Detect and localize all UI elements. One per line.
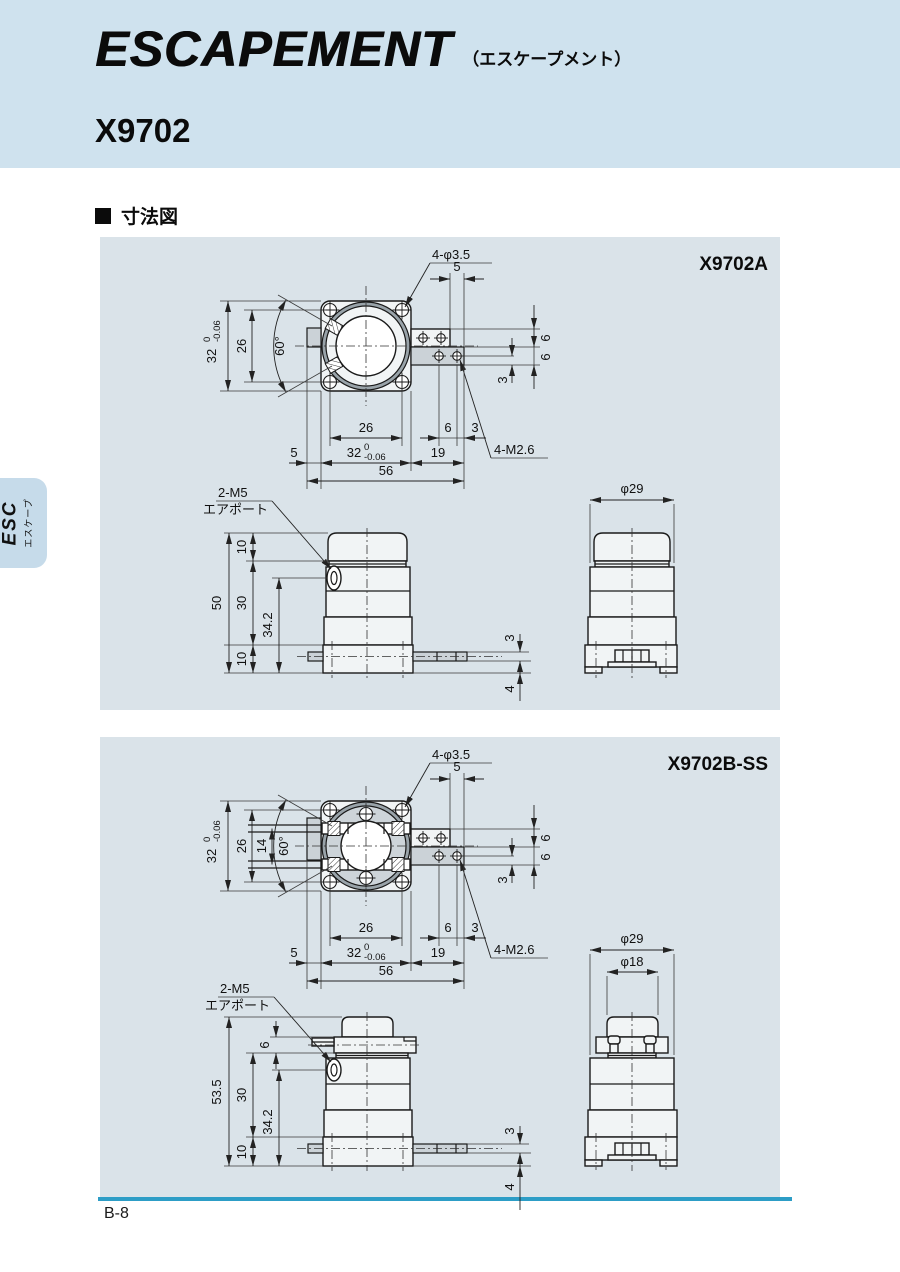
header-logo-row: ESCAPEMENT （エスケープメント）	[95, 24, 631, 74]
dim-label: 26	[359, 420, 373, 435]
dim-label: 19	[431, 945, 445, 960]
brand-logo-kana: （エスケープメント）	[462, 45, 631, 74]
dim-label: 6	[444, 920, 451, 935]
header-band: ESCAPEMENT （エスケープメント） X9702	[0, 0, 900, 168]
port-label: エアポート	[203, 502, 268, 517]
dim-32-tol-bottom: 32 0 -0.06	[347, 442, 386, 463]
dim-label: 6	[538, 334, 553, 341]
svg-text:32: 32	[347, 945, 361, 960]
x9702b-ss-drawing: X9702B-SS	[100, 737, 780, 1215]
svg-text:-0.06: -0.06	[364, 952, 386, 963]
dim-label: 30	[234, 596, 249, 610]
left-tab	[307, 818, 321, 860]
dim-label: 6	[538, 853, 553, 860]
dim-label: 5	[290, 445, 297, 460]
section-title-label: 寸法図	[121, 202, 178, 229]
dim-label: 4	[502, 685, 517, 692]
dim-label: 56	[379, 463, 393, 478]
dim-32-tol: 32 0 -0.06	[202, 320, 223, 363]
model-title: X9702	[95, 112, 190, 150]
brand-logo: ESCAPEMENT	[95, 24, 452, 74]
svg-text:32: 32	[204, 849, 219, 863]
left-tab	[307, 328, 321, 347]
dim-label: 10	[234, 540, 249, 554]
dim-label: 14	[254, 839, 269, 853]
panel-title: X9702A	[699, 254, 768, 275]
svg-text:32: 32	[204, 349, 219, 363]
dim-label: 56	[379, 963, 393, 978]
x9702b-top-view: 32 0 -0.06 26 14 60° 4-φ3.5 5 6 6 3 4-M	[202, 747, 553, 989]
dim-label: 4-φ3.5	[432, 747, 470, 762]
dim-label: 4	[502, 1183, 517, 1190]
dim-32-tol-bottom: 32 0 -0.06	[347, 942, 386, 963]
dim-label: 5	[290, 945, 297, 960]
dim-label: 50	[209, 596, 224, 610]
dim-label: 60°	[276, 836, 291, 856]
svg-text:32: 32	[347, 445, 361, 460]
x9702b-side-view: 2-M5 エアポート 53.5 6 30 10 34.2 3 4	[205, 981, 531, 1210]
dim-label: 6	[538, 834, 553, 841]
dim-label: 19	[431, 445, 445, 460]
x9702a-side-view: 2-M5 エアポート 50 10 30 10 34.2 3 4	[203, 485, 531, 701]
dim-label: φ29	[621, 481, 644, 496]
dim-label: 5	[453, 759, 460, 774]
x9702a-front-view: φ29	[585, 481, 677, 678]
dim-32-tol: 32 0 -0.06	[202, 820, 223, 863]
x9702a-drawing: X9702A 32 0	[100, 237, 780, 710]
port-label: 2-M5	[220, 981, 250, 996]
dim-label: 10	[234, 652, 249, 666]
dim-label: 26	[359, 920, 373, 935]
dim-label: 30	[234, 1088, 249, 1102]
dim-label: 4-M2.6	[494, 942, 534, 957]
dim-label: 26	[234, 339, 249, 353]
dim-label: 6	[444, 420, 451, 435]
sidebar-index-tab: ESC エスケープ	[0, 478, 47, 568]
sidebar-tab-inner: ESC エスケープ	[0, 478, 47, 568]
catalog-page: ESCAPEMENT （エスケープメント） X9702 ESC エスケープ 寸法…	[0, 0, 900, 1272]
dim-label: 60°	[272, 336, 287, 356]
svg-text:-0.06: -0.06	[212, 320, 223, 342]
dim-label: 3	[471, 420, 478, 435]
x9702b-front-view: φ29 φ18	[585, 931, 677, 1171]
panel-x9702b-ss: X9702B-SS	[100, 737, 780, 1197]
svg-text:-0.06: -0.06	[212, 820, 223, 842]
dim-label: 3	[471, 920, 478, 935]
dim-label: 3	[495, 376, 510, 383]
svg-text:-0.06: -0.06	[364, 452, 386, 463]
dim-label: 34.2	[260, 612, 275, 637]
dim-label: φ18	[621, 954, 644, 969]
dim-label: 26	[234, 839, 249, 853]
dim-label: 3	[502, 634, 517, 641]
x9702a-top-view: 32 0 -0.06 26 60° 4-φ3.5 5 6 6 3 4-M2.6	[202, 247, 553, 489]
dim-label: 6	[257, 1041, 272, 1048]
dim-label: 53.5	[209, 1079, 224, 1104]
dim-label: 6	[538, 353, 553, 360]
dim-label: 4-M2.6	[494, 442, 534, 457]
dim-label: φ29	[621, 931, 644, 946]
sidebar-tab-kana: エスケープ	[21, 478, 34, 568]
dim-label: 10	[234, 1145, 249, 1159]
section-title: 寸法図	[95, 202, 178, 229]
port-label: 2-M5	[218, 485, 248, 500]
page-number: B-8	[104, 1205, 129, 1223]
panel-title: X9702B-SS	[668, 754, 768, 775]
dim-label: 34.2	[260, 1109, 275, 1134]
panel-x9702a: X9702A 32 0	[100, 237, 780, 710]
dim-label: 4-φ3.5	[432, 247, 470, 262]
dim-label: 3	[502, 1127, 517, 1134]
square-bullet-icon	[95, 208, 111, 224]
sidebar-tab-code: ESC	[0, 478, 21, 568]
dim-label: 5	[453, 259, 460, 274]
port-label: エアポート	[205, 998, 270, 1013]
dim-label: 3	[495, 876, 510, 883]
